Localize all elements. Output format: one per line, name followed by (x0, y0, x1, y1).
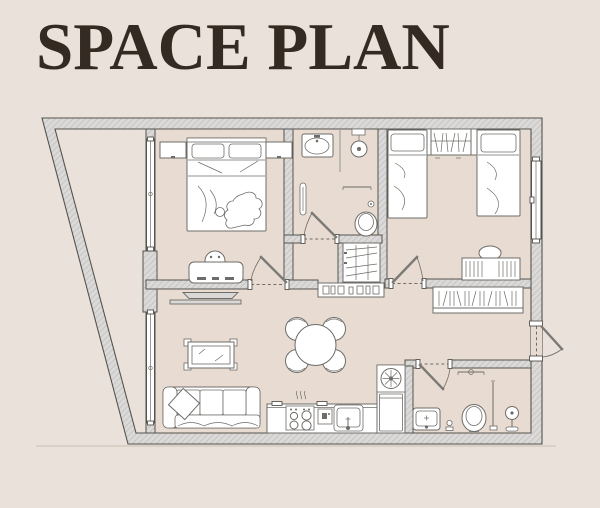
window-sill (148, 137, 154, 141)
pillow-icon (481, 134, 516, 152)
door-leaf (542, 327, 562, 349)
window-sill (148, 247, 154, 251)
bathroom-sink-icon (302, 134, 333, 157)
nightstand-icon (266, 142, 292, 158)
window-sill (148, 310, 154, 314)
coffee-table-icon (184, 339, 237, 370)
wardrobe-hangers-icon (425, 129, 477, 158)
nightstand-handle (277, 156, 281, 159)
nightstand-handle (171, 156, 175, 159)
right-window (530, 157, 541, 243)
single-bed-icon (477, 130, 520, 216)
towel-radiator-icon (300, 183, 306, 215)
double-bed-icon (187, 138, 266, 231)
hob-icon (286, 406, 314, 430)
extractor-fan-icon (377, 365, 405, 392)
entrance-door (530, 321, 563, 361)
toilet-icon (355, 212, 377, 236)
dining-set (286, 318, 346, 373)
window-sill (148, 421, 154, 425)
bathroom-sink-icon (413, 408, 440, 430)
poster-page: SPACE PLAN (0, 0, 600, 508)
counter-socket (317, 402, 327, 406)
dining-table-icon (295, 325, 336, 366)
nightstand-icon (160, 142, 186, 158)
single-bed-icon (388, 130, 427, 218)
window-sill (533, 239, 540, 243)
exterior-wedge (55, 129, 146, 433)
toilet-icon (462, 405, 486, 432)
tv-stand (170, 300, 241, 304)
window-handle-icon (530, 197, 534, 203)
coffee-machine-icon (318, 409, 332, 424)
toilet-brush-icon (368, 201, 374, 207)
headboard (187, 138, 266, 142)
fridge-icon (380, 394, 403, 431)
sofa-cushion (200, 390, 223, 415)
pillow-icon (192, 144, 224, 158)
console-shelf-icon (318, 283, 384, 297)
desk-icon (462, 258, 520, 280)
kitchen-sink-icon (334, 405, 363, 431)
sofa-cushion (223, 390, 246, 415)
rain-shower-icon (351, 129, 367, 157)
floor-plan-svg (0, 0, 600, 508)
bookshelf-icon (433, 287, 523, 313)
sofa-icon (163, 387, 260, 428)
tv-screen (183, 293, 238, 299)
door-swing-arc (543, 349, 562, 357)
pillow-icon (229, 144, 261, 158)
wardrobe-niche-icon (343, 243, 380, 282)
counter-socket (272, 402, 282, 406)
window-sill (533, 157, 540, 161)
pillow-icon (391, 134, 424, 151)
